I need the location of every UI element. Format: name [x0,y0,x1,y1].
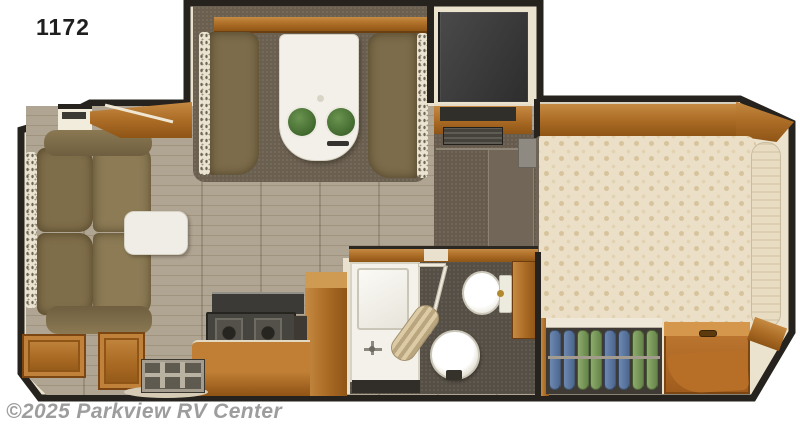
toilet [462,271,502,315]
hanging-shirt-blue [549,330,561,390]
floorplan-image: 1172 ©2025 Parkview RV Center [0,0,800,427]
wall-slideout-right [427,3,434,103]
bathroom-doorway [424,249,448,261]
kitchen-tall-cabinet-top [305,272,347,288]
dinette-bench-left [210,32,259,175]
shower-door [418,263,446,267]
hanging-shirt-green [590,330,602,390]
chest-handle [700,331,716,336]
green-stool [327,108,355,136]
table-latch [327,141,349,146]
shower-basin [357,268,409,330]
wardrobe-rod [548,356,660,359]
bed [536,136,756,326]
kitchen-tall-cabinet [305,272,347,396]
wall-cabinet-window [62,112,86,119]
bench-floral-trim [199,32,210,175]
dinette-bench-right [368,33,417,178]
stove-backsplash [212,292,304,314]
sofa-arm [46,306,152,334]
hanging-shirt-blue [618,330,630,390]
sofa-back-cushion [37,233,93,315]
bathroom-cabinet [512,261,537,339]
hanging-shirt-green [632,330,644,390]
dinette-overhead-shelf [214,17,432,33]
sofa-back-cushion [37,148,93,232]
hanging-shirt-blue [604,330,616,390]
kitchen-counter [192,340,310,396]
wardrobe-clothes [546,328,662,394]
entry-step-bar [145,373,201,377]
sofa-storage-base [22,334,86,378]
table-knob [317,95,324,102]
bed-overhead-cabinet [540,102,740,138]
fridge-cabinet-counter [440,107,516,121]
green-stool [288,108,316,136]
vent-grille [443,127,503,145]
shower-mat [352,380,420,393]
toilet-hinge [497,290,504,297]
hanging-shirt-blue [563,330,575,390]
hanging-shirt-green [646,330,658,390]
watermark-label: ©2025 Parkview RV Center [6,400,282,424]
wardrobe-shelf [546,318,662,328]
side-table [124,211,188,255]
refrigerator [438,12,528,102]
model-number-label: 1172 [36,14,90,41]
sink-faucet [446,370,462,380]
hanging-shirt-green [577,330,589,390]
sofa-storage-base [98,332,145,390]
bed-pillow [751,142,781,328]
shower-faucet [369,346,375,352]
sofa-floral-trim [25,152,37,308]
